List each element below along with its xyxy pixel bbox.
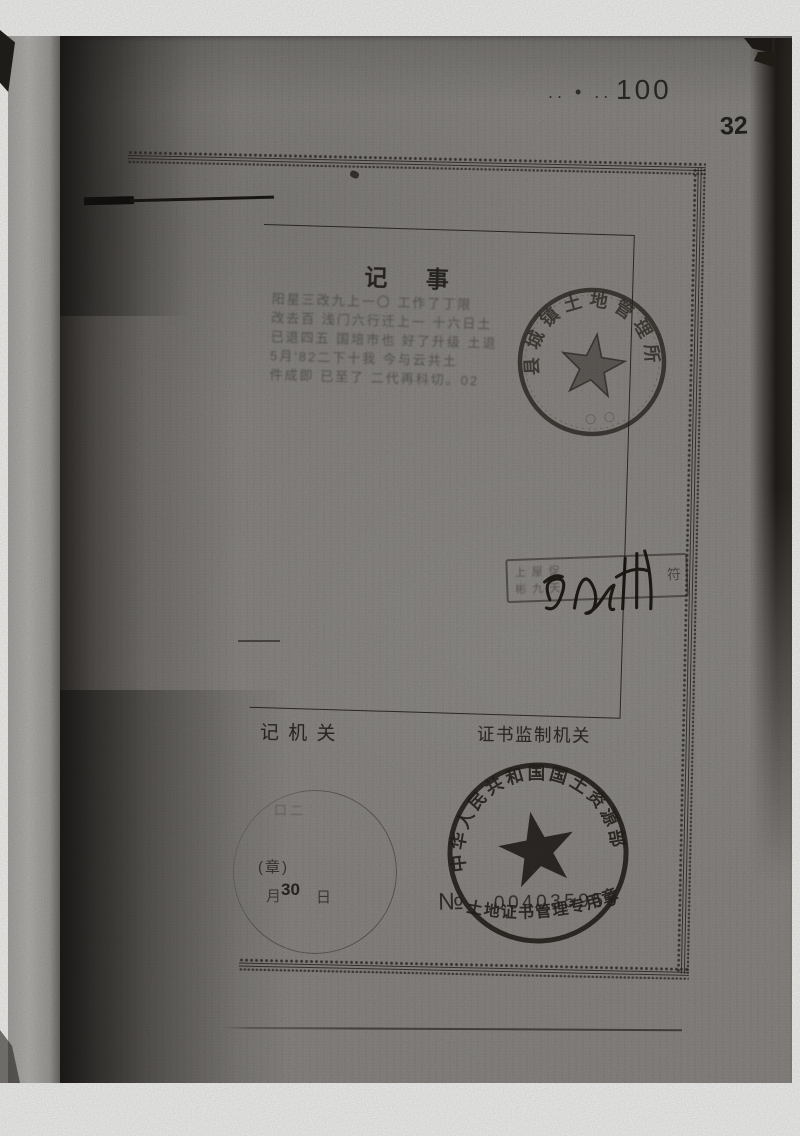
faint-scribble: 口二: [274, 800, 306, 819]
seal-bottom-chars: 〇〇: [584, 410, 623, 427]
serial-suffix: s: [608, 892, 616, 910]
certificate-supervision-label: 证书监制机关: [477, 721, 591, 748]
signature-stroke: [544, 579, 565, 610]
registry-agency-label: 记 机 关: [260, 717, 338, 745]
record-heading: 记 事: [364, 258, 455, 295]
signature-stroke: [615, 551, 653, 611]
line-artifact: [238, 640, 280, 642]
seal-note-label: (章): [258, 856, 289, 877]
star-outline-icon: [561, 332, 628, 401]
ink-line: [130, 196, 274, 202]
handwritten-signature: [533, 543, 673, 627]
date-day-handwritten: 30: [281, 880, 300, 900]
signature-stroke: [573, 577, 616, 614]
date-day-char: 日: [316, 886, 331, 907]
serial-number-row: № 004035959 s: [438, 883, 649, 924]
signature-stroke: [619, 554, 641, 609]
ink-bar: [84, 196, 134, 205]
office-seal-stamp: 县城镇土地管理所 〇〇: [505, 275, 679, 449]
serial-number: 004035959: [494, 890, 621, 915]
page-number-32: 32: [720, 112, 749, 142]
numero-symbol: №: [438, 888, 464, 917]
date-month-char: 月: [266, 885, 281, 906]
corner-number-100: 100: [616, 74, 672, 106]
star-icon: [496, 810, 575, 889]
book-gutter-page-edge: [8, 36, 60, 1083]
page-edge-shadow-right: [750, 38, 792, 908]
